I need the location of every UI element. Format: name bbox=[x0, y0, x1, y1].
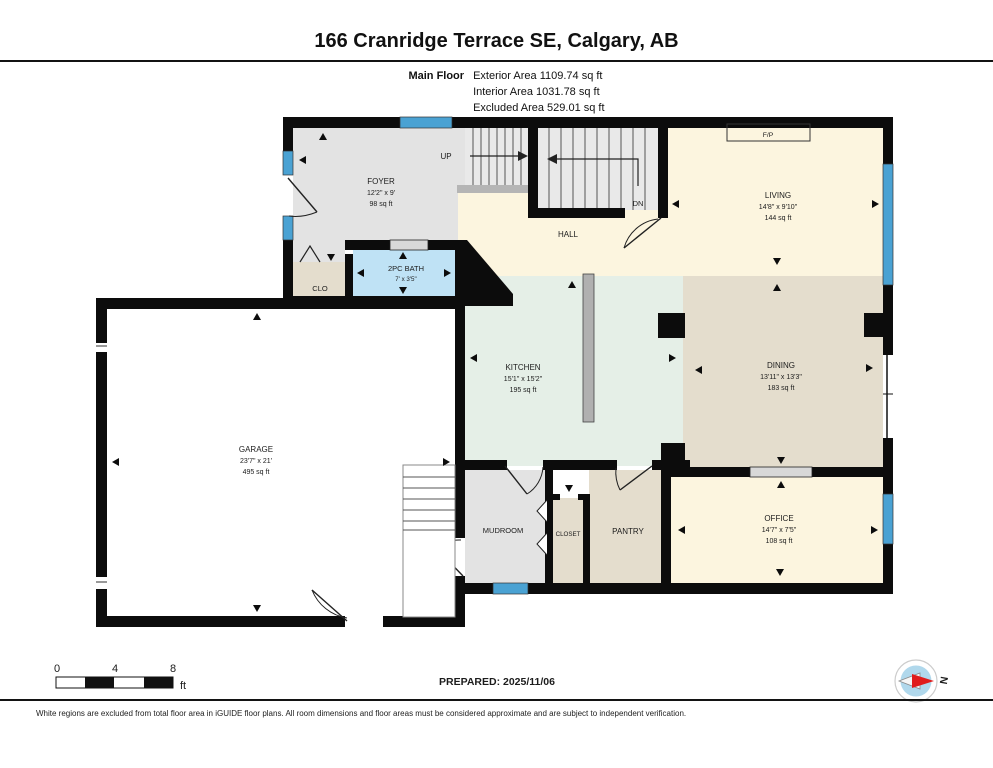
footer-divider bbox=[0, 699, 993, 701]
living-dims: 14'8" x 9'10" bbox=[759, 204, 798, 211]
dining-dims: 13'11" x 13'3" bbox=[760, 374, 802, 381]
foyer-dims: 12'2" x 9' bbox=[367, 190, 395, 197]
garage-label: GARAGE bbox=[239, 445, 273, 454]
foyer-area: 98 sq ft bbox=[370, 201, 393, 208]
scale-tick-0: 0 bbox=[54, 663, 60, 675]
garage-dims: 23'7" x 21' bbox=[240, 458, 272, 465]
foyer-top-window bbox=[400, 117, 452, 128]
compass: N bbox=[895, 660, 950, 702]
living-label: LIVING bbox=[765, 191, 791, 200]
floorplan-page: 166 Cranridge Terrace SE, Calgary, AB Ma… bbox=[0, 0, 993, 768]
dining-office-opening bbox=[750, 467, 812, 477]
office-dims: 14'7" x 7'5" bbox=[762, 527, 797, 534]
foyer-label: FOYER bbox=[367, 177, 395, 186]
scale-tick-4: 4 bbox=[112, 663, 118, 675]
hall-label: HALL bbox=[558, 230, 579, 239]
floorplan-svg: FOYER 12'2" x 9' 98 sq ft LIVING 14'8" x… bbox=[0, 0, 993, 768]
kitchen-dims: 15'1" x 15'2" bbox=[504, 376, 543, 383]
staircase-down bbox=[537, 128, 660, 210]
living-floor bbox=[664, 126, 885, 278]
closet-floor bbox=[551, 498, 585, 585]
pantry-label: PANTRY bbox=[612, 527, 644, 536]
stairs-up-label: UP bbox=[440, 152, 451, 161]
mudroom-window bbox=[493, 583, 528, 594]
stair-sill bbox=[457, 185, 535, 193]
office-area: 108 sq ft bbox=[766, 538, 793, 545]
scale-unit: ft bbox=[180, 680, 186, 692]
garage-area: 495 sq ft bbox=[243, 469, 270, 476]
mudroom-label: MUDROOM bbox=[483, 526, 523, 535]
office-label: OFFICE bbox=[764, 514, 793, 523]
clo-label: CLO bbox=[312, 284, 328, 293]
living-area: 144 sq ft bbox=[765, 215, 792, 222]
kitchen-island bbox=[583, 274, 594, 422]
kitchen-area: 195 sq ft bbox=[510, 387, 537, 394]
staircase-up bbox=[457, 128, 535, 193]
bath-label: 2PC BATH bbox=[388, 264, 424, 273]
dining-area: 183 sq ft bbox=[768, 385, 795, 392]
living-window bbox=[883, 164, 893, 285]
bath-door-opening bbox=[390, 240, 428, 250]
disclaimer-text: White regions are excluded from total fl… bbox=[36, 709, 686, 718]
garage-landing-door-gap bbox=[455, 538, 465, 576]
foyer-left-window-1 bbox=[283, 151, 293, 175]
dining-label: DINING bbox=[767, 361, 795, 370]
foyer-left-window-2 bbox=[283, 216, 293, 240]
scale-bar: 0 4 8 ft bbox=[54, 663, 186, 692]
scale-tick-8: 8 bbox=[170, 663, 176, 675]
kitchen-label: KITCHEN bbox=[505, 363, 540, 372]
bath-dims: 7' x 3'5" bbox=[395, 276, 416, 283]
dining-floor bbox=[683, 276, 885, 469]
stairs-down-label: DN bbox=[633, 199, 644, 208]
foyer-floor bbox=[293, 128, 465, 244]
fireplace-label: F/P bbox=[763, 132, 774, 139]
patio-slider-gap bbox=[883, 355, 893, 438]
compass-north-label: N bbox=[937, 675, 950, 685]
closet-label: CLOSET bbox=[556, 531, 581, 538]
office-window bbox=[883, 494, 893, 544]
prepared-date: PREPARED: 2025/11/06 bbox=[439, 676, 555, 688]
